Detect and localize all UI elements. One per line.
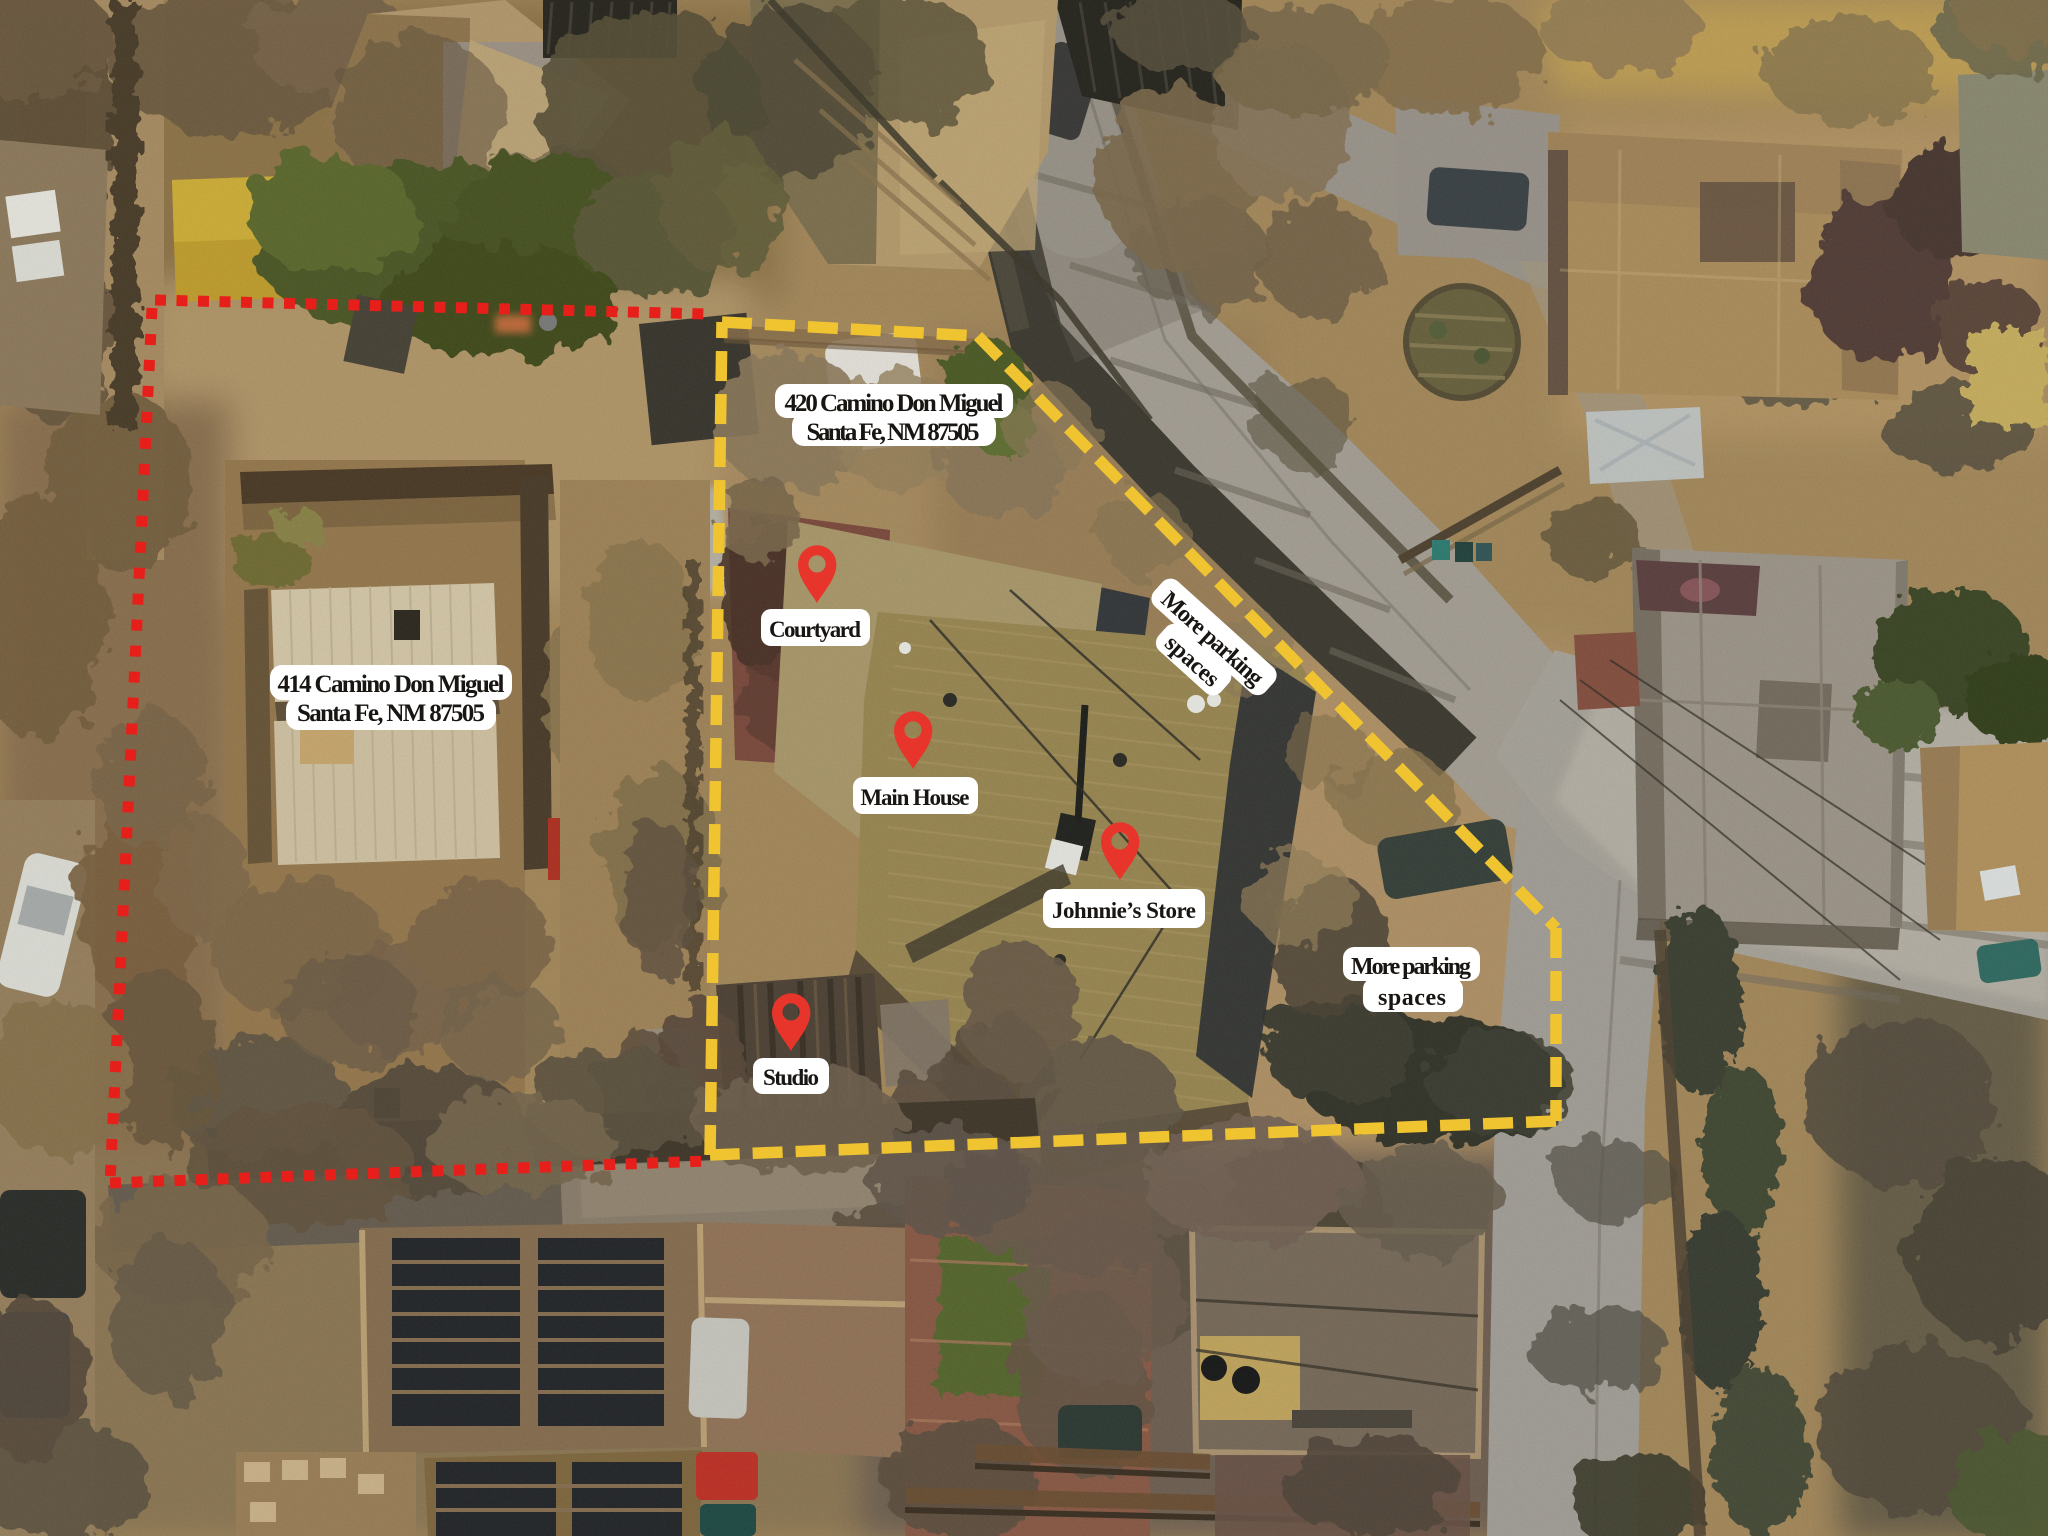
svg-text:Main House: Main House xyxy=(861,785,970,810)
svg-text:spaces: spaces xyxy=(1378,985,1446,1011)
svg-text:Studio: Studio xyxy=(763,1065,819,1090)
svg-text:Santa Fe, NM 87505: Santa Fe, NM 87505 xyxy=(297,700,485,727)
svg-text:420 Camino Don Miguel: 420 Camino Don Miguel xyxy=(785,390,1004,417)
svg-text:More parking: More parking xyxy=(1351,954,1471,980)
svg-text:Courtyard: Courtyard xyxy=(769,617,861,642)
svg-text:414 Camino Don Miguel: 414 Camino Don Miguel xyxy=(278,671,505,698)
svg-text:Johnnie’s Store: Johnnie’s Store xyxy=(1052,898,1196,923)
svg-text:Santa Fe, NM 87505: Santa Fe, NM 87505 xyxy=(807,419,980,446)
